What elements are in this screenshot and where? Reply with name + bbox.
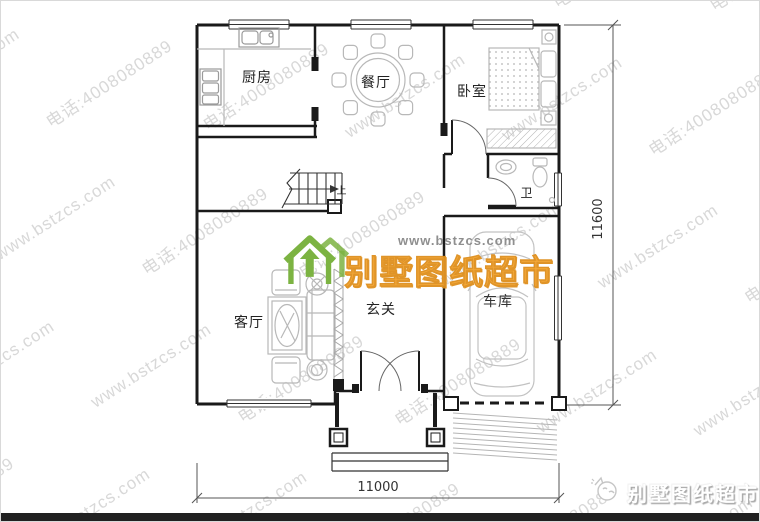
- floorplan-drawing: 11600 11000 厨房 餐厅 卧室 卫 客厅 玄关 车库 上: [1, 1, 760, 522]
- brand-mascot-icon: [589, 475, 623, 505]
- label-foyer: 玄关: [366, 301, 396, 318]
- dimension-height-label: 11600: [591, 198, 606, 239]
- driveway-ramp: [453, 413, 557, 460]
- label-garage: 车库: [483, 293, 513, 310]
- label-dining: 餐厅: [361, 75, 391, 91]
- bedroom-furniture: [487, 30, 556, 148]
- bottom-black-bar: [1, 513, 759, 521]
- floorplan-image: www.bstzcs.com电话:4008080889www.bstzcs.co…: [0, 0, 760, 522]
- label-bedroom: 卧室: [457, 83, 487, 100]
- garage-door-posts: [328, 200, 566, 410]
- label-living: 客厅: [234, 314, 264, 331]
- porch: [330, 429, 448, 471]
- doors: [361, 120, 516, 391]
- car-icon: [468, 232, 536, 396]
- corner-brand-watermark: 别墅图纸超市: [589, 475, 759, 507]
- label-stairs-up: 上: [337, 185, 348, 197]
- dimension-width-label: 11000: [357, 480, 398, 495]
- living-room-furniture: [268, 270, 335, 383]
- dimension-lines: [192, 20, 621, 503]
- corner-brand-name: 别墅图纸超市: [627, 478, 759, 507]
- label-kitchen: 厨房: [242, 70, 272, 86]
- label-bath: 卫: [520, 186, 533, 200]
